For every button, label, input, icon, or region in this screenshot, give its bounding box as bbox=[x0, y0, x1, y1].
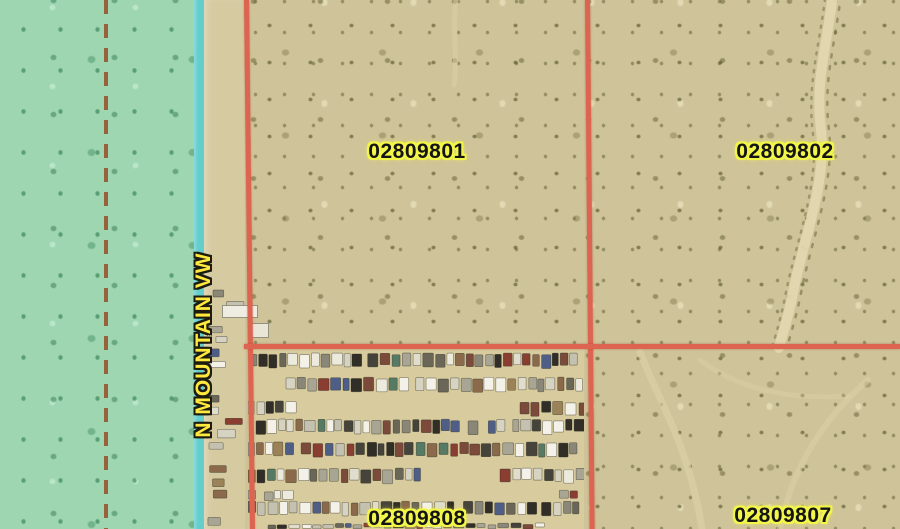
auto-salvage-yard bbox=[248, 349, 584, 529]
parcel-label-02809801[interactable]: 02809801 bbox=[368, 140, 465, 164]
parcel-label-02809808[interactable]: 02809808 bbox=[368, 507, 465, 529]
dashed-boundary-line bbox=[104, 0, 108, 529]
parcel-boundary-horizontal bbox=[244, 344, 900, 349]
road-label-n-mountain-vw: N MOUNTAIN VW bbox=[192, 252, 216, 437]
parcel-label-02809802[interactable]: 02809802 bbox=[736, 140, 833, 164]
parcel-label-02809807[interactable]: 02809807 bbox=[734, 504, 831, 528]
roadside-building bbox=[250, 323, 269, 338]
overlay-zone-teal bbox=[0, 0, 195, 529]
parcel-map-canvas[interactable]: 02809801 02809802 02809808 02809807 N MO… bbox=[0, 0, 900, 529]
